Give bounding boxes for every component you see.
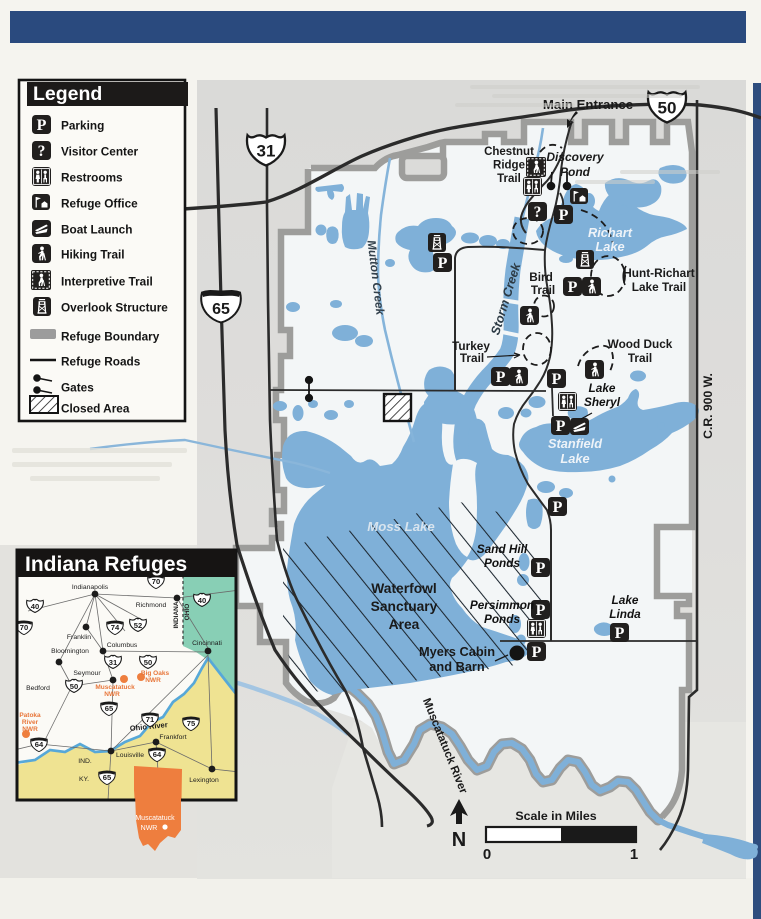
svg-text:Linda: Linda [609,607,641,621]
svg-text:Lexington: Lexington [189,777,219,784]
svg-text:50: 50 [70,682,78,691]
svg-text:Persimmon: Persimmon [470,598,534,612]
svg-text:Wood Duck: Wood Duck [608,337,673,351]
svg-text:Scale in Miles: Scale in Miles [515,809,596,823]
svg-text:Indiana Refuges: Indiana Refuges [25,553,187,576]
svg-text:River: River [22,719,39,726]
svg-text:Lake Trail: Lake Trail [632,280,686,294]
svg-text:50: 50 [658,99,677,118]
svg-text:Lake: Lake [560,451,589,466]
svg-text:INDIANA: INDIANA [173,601,180,628]
svg-text:Columbus: Columbus [107,642,138,649]
svg-text:Restrooms: Restrooms [61,171,123,185]
svg-text:Bedford: Bedford [26,685,50,692]
svg-text:64: 64 [35,740,44,749]
svg-text:Louisville: Louisville [116,752,144,759]
svg-text:Parking: Parking [61,119,104,133]
svg-text:Hiking Trail: Hiking Trail [61,248,125,262]
svg-text:Ridge: Ridge [493,160,525,172]
svg-text:Lake: Lake [612,593,639,607]
svg-text:Bird: Bird [529,270,553,284]
svg-text:Lake: Lake [595,239,624,254]
svg-text:70: 70 [152,577,160,586]
svg-text:Pond: Pond [560,165,591,179]
svg-text:Cincinnati: Cincinnati [192,640,222,647]
svg-text:70: 70 [20,623,28,632]
svg-text:Ponds: Ponds [484,612,520,626]
svg-text:Sheryl: Sheryl [584,395,621,409]
svg-text:IND.: IND. [78,758,92,765]
svg-text:Refuge Roads: Refuge Roads [61,355,141,369]
svg-text:Franklin: Franklin [67,634,91,641]
svg-text:Trail: Trail [531,283,555,297]
svg-text:Patoka: Patoka [19,712,41,719]
svg-text:Frankfort: Frankfort [159,734,186,741]
svg-text:71: 71 [146,715,155,724]
svg-text:Moss Lake: Moss Lake [367,519,434,534]
svg-text:Area: Area [389,617,420,632]
svg-text:C.R. 900 W.: C.R. 900 W. [701,373,715,439]
svg-text:Hunt-Richart: Hunt-Richart [623,266,695,280]
svg-text:N: N [452,829,466,851]
svg-text:Legend: Legend [33,83,102,105]
svg-text:Seymour: Seymour [73,670,101,677]
svg-text:Myers Cabin: Myers Cabin [419,644,495,659]
svg-text:Refuge Office: Refuge Office [61,197,138,211]
svg-text:Sand Hill: Sand Hill [477,542,528,556]
svg-text:Sanctuary: Sanctuary [371,599,438,614]
svg-text:74: 74 [111,623,120,632]
svg-text:Visitor Center: Visitor Center [61,145,139,159]
svg-text:1: 1 [630,846,638,863]
svg-text:Big Oaks: Big Oaks [141,670,170,677]
svg-text:31: 31 [257,142,276,161]
svg-text:Boat Launch: Boat Launch [61,223,132,237]
svg-text:0: 0 [483,846,491,863]
svg-text:Indianapolis: Indianapolis [72,584,109,591]
svg-text:Discovery: Discovery [546,150,605,164]
svg-text:Stanfield: Stanfield [548,436,603,451]
svg-text:Interpretive Trail: Interpretive Trail [61,275,153,289]
svg-text:40: 40 [31,602,39,611]
svg-text:Richart: Richart [588,225,633,240]
svg-text:Richmond: Richmond [136,602,167,609]
svg-text:65: 65 [105,704,114,713]
svg-text:31: 31 [109,658,118,667]
svg-text:Trail: Trail [497,173,521,185]
svg-text:Muscatatuck: Muscatatuck [135,815,175,822]
svg-text:Trail: Trail [628,351,652,365]
svg-text:NWR: NWR [104,691,120,698]
svg-text:Muscatatuck: Muscatatuck [95,684,135,691]
svg-text:Refuge Boundary: Refuge Boundary [61,330,160,344]
svg-text:52: 52 [134,621,142,630]
svg-text:NWR: NWR [22,726,38,733]
svg-text:50: 50 [144,658,152,667]
svg-text:64: 64 [153,750,162,759]
svg-text:NWR: NWR [145,677,161,684]
svg-text:65: 65 [212,301,230,318]
svg-text:Gates: Gates [61,381,94,395]
svg-text:NWR: NWR [141,825,158,832]
svg-text:OHIO: OHIO [184,604,191,621]
svg-text:Ponds: Ponds [484,556,520,570]
svg-text:KY.: KY. [79,776,89,783]
svg-text:Trail: Trail [460,351,484,365]
svg-text:Chestnut: Chestnut [484,146,534,158]
svg-text:and Barn: and Barn [429,659,485,674]
svg-text:Waterfowl: Waterfowl [371,581,436,596]
svg-text:Closed Area: Closed Area [61,402,130,416]
svg-text:Bloomington: Bloomington [51,648,89,655]
svg-text:Overlook Structure: Overlook Structure [61,301,168,315]
svg-text:Lake: Lake [589,381,616,395]
svg-text:65: 65 [103,773,112,782]
svg-text:40: 40 [198,596,206,605]
svg-text:75: 75 [187,719,196,728]
